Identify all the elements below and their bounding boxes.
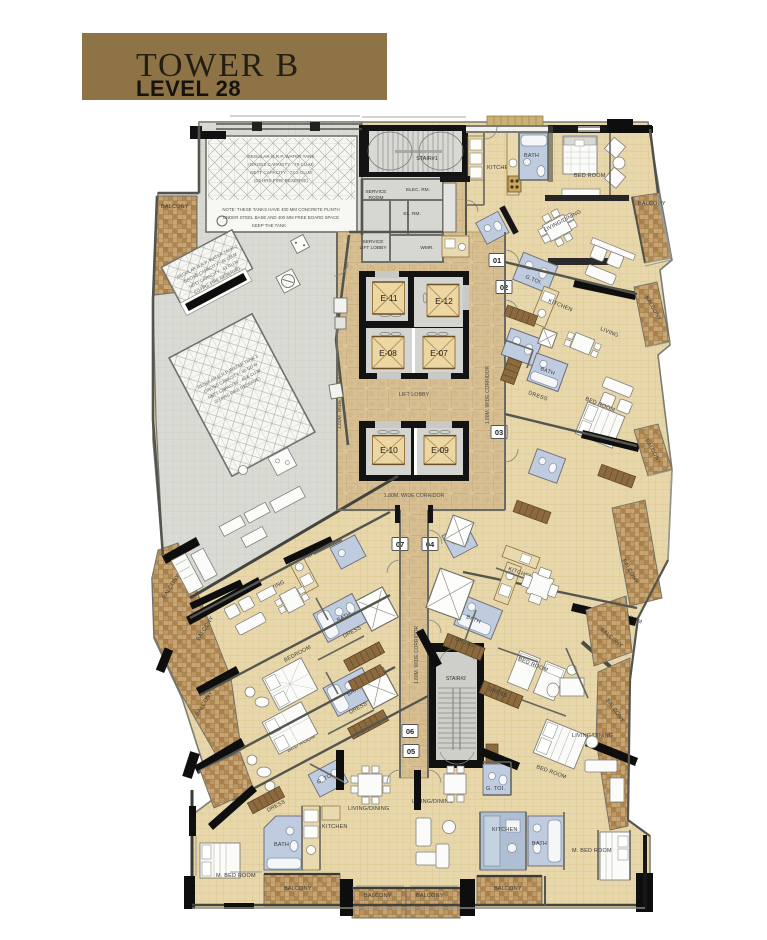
svg-text:E-10: E-10 — [380, 445, 398, 455]
svg-text:KITCHEN: KITCHEN — [322, 824, 348, 830]
svg-text:01: 01 — [493, 256, 501, 265]
svg-text:BED ROOM: BED ROOM — [574, 173, 606, 179]
svg-text:BALCONY: BALCONY — [364, 893, 392, 899]
svg-text:E-08: E-08 — [379, 348, 397, 358]
svg-text:BATH: BATH — [274, 842, 289, 848]
svg-text:BATH: BATH — [532, 841, 547, 847]
svg-text:NETT CAPACITY : 72.2 CU.M: NETT CAPACITY : 72.2 CU.M — [250, 170, 312, 175]
svg-text:BALCONY: BALCONY — [494, 886, 522, 892]
svg-text:SERVICE: SERVICE — [363, 239, 384, 245]
svg-text:NOTE: THESE TANKS HAVE 400 MM: NOTE: THESE TANKS HAVE 400 MM CONCRETE P… — [222, 207, 339, 212]
svg-text:E-11: E-11 — [380, 293, 397, 303]
svg-text:BALCONY: BALCONY — [416, 893, 444, 899]
svg-text:E-12: E-12 — [435, 296, 453, 306]
svg-text:EL. RM.: EL. RM. — [403, 211, 420, 217]
svg-text:SERVICE: SERVICE — [366, 189, 387, 195]
svg-text:LIVING/DINING: LIVING/DINING — [348, 806, 389, 812]
svg-text:LIFT LOBBY: LIFT LOBBY — [399, 392, 430, 398]
svg-text:BALCONY: BALCONY — [284, 886, 312, 892]
svg-text:WMR.: WMR. — [420, 245, 433, 251]
svg-text:UNDER STEEL BASE AND 400 MM FR: UNDER STEEL BASE AND 400 MM FREE BOARD S… — [223, 215, 339, 220]
svg-text:ROOM: ROOM — [369, 195, 384, 201]
svg-text:E-09: E-09 — [431, 445, 449, 455]
svg-text:05: 05 — [407, 747, 415, 756]
svg-text:1.80M. WIDE CORRIDOR: 1.80M. WIDE CORRIDOR — [485, 365, 491, 424]
svg-text:BALCONY: BALCONY — [161, 204, 189, 210]
svg-text:KEEP THE TANK: KEEP THE TANK — [252, 223, 286, 228]
svg-text:(03 HRS FIRE RESERVE): (03 HRS FIRE RESERVE) — [254, 178, 309, 183]
svg-text:M. BED ROOM: M. BED ROOM — [572, 848, 612, 854]
svg-text:1.80M. WIDE CORRIDOR: 1.80M. WIDE CORRIDOR — [384, 493, 445, 499]
svg-text:LIFT LOBBY: LIFT LOBBY — [359, 245, 387, 251]
svg-text:E-07: E-07 — [430, 348, 448, 358]
svg-text:03: 03 — [495, 428, 503, 437]
svg-text:LEVEL 28: LEVEL 28 — [136, 76, 241, 101]
svg-text:BALCONY: BALCONY — [638, 201, 666, 207]
svg-text:KITCHEN: KITCHEN — [492, 827, 518, 833]
svg-text:M. BED ROOM: M. BED ROOM — [216, 873, 256, 879]
svg-text:REGULAR G.R.P. WATER TANK: REGULAR G.R.P. WATER TANK — [247, 154, 315, 159]
svg-text:06: 06 — [406, 727, 414, 736]
svg-text:BATH: BATH — [524, 153, 539, 159]
svg-text:G. TOI.: G. TOI. — [486, 786, 506, 792]
svg-text:(GROSS CAPACITY : 79 CU.M): (GROSS CAPACITY : 79 CU.M) — [248, 162, 314, 167]
svg-text:ELEC. RM.: ELEC. RM. — [406, 187, 430, 193]
svg-text:STAIR#2: STAIR#2 — [446, 676, 466, 682]
svg-text:STAIR#1: STAIR#1 — [416, 156, 437, 162]
